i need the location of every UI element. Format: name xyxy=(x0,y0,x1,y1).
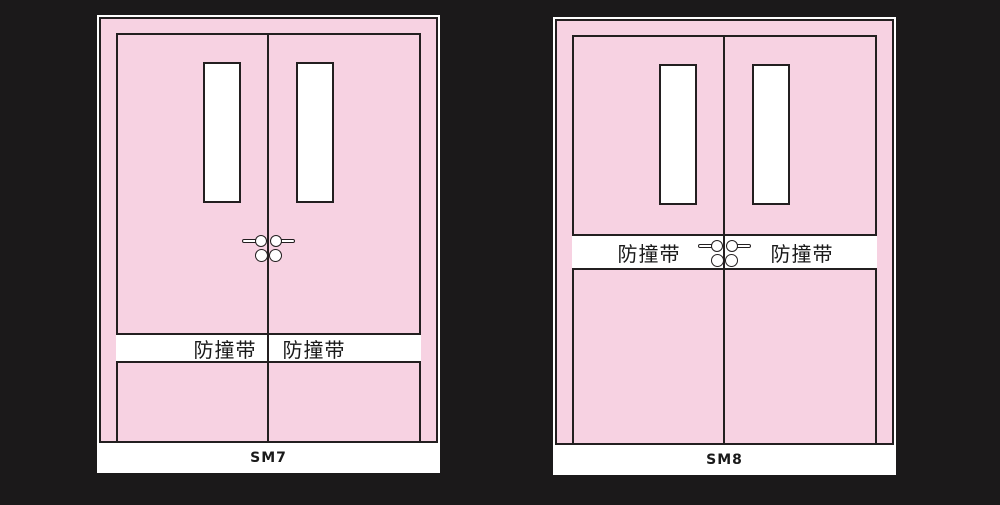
door-window-left xyxy=(203,62,241,203)
bumper-strip-right-segment: 防撞带 xyxy=(269,335,422,361)
door-knob-left-icon xyxy=(711,254,724,267)
bumper-strip-label-left: 防撞带 xyxy=(618,238,681,267)
door-window-left xyxy=(659,64,697,205)
drawing-canvas: 防撞带 防撞带 SM7 防撞带 防撞带 xyxy=(0,0,1000,505)
bumper-strip-label-right: 防撞带 xyxy=(771,238,834,267)
lever-rosette-right-icon xyxy=(270,235,282,247)
bumper-strip-right-segment: 防撞带 xyxy=(725,236,878,268)
bumper-strip-left-segment: 防撞带 xyxy=(116,335,269,361)
door-centerline xyxy=(267,33,269,443)
figure-caption-label: SM8 xyxy=(706,452,743,468)
lever-rosette-left-icon xyxy=(255,235,267,247)
bumper-strip-left-segment: 防撞带 xyxy=(572,236,725,268)
figure-caption: SM8 xyxy=(553,445,896,475)
door-knob-left-icon xyxy=(255,249,268,262)
door-knob-right-icon xyxy=(725,254,738,267)
bumper-strip-label-left: 防撞带 xyxy=(194,335,257,361)
lever-rosette-left-icon xyxy=(711,240,723,252)
door-window-right xyxy=(296,62,334,203)
door-drawing-sm8: 防撞带 防撞带 SM8 xyxy=(553,17,896,475)
figure-caption: SM7 xyxy=(97,443,440,473)
door-centerline xyxy=(723,35,725,445)
door-knob-right-icon xyxy=(269,249,282,262)
bumper-strip-label-right: 防撞带 xyxy=(283,335,346,361)
door-drawing-sm7: 防撞带 防撞带 SM7 xyxy=(97,15,440,473)
lever-rosette-right-icon xyxy=(726,240,738,252)
door-window-right xyxy=(752,64,790,205)
figure-caption-label: SM7 xyxy=(250,450,287,466)
